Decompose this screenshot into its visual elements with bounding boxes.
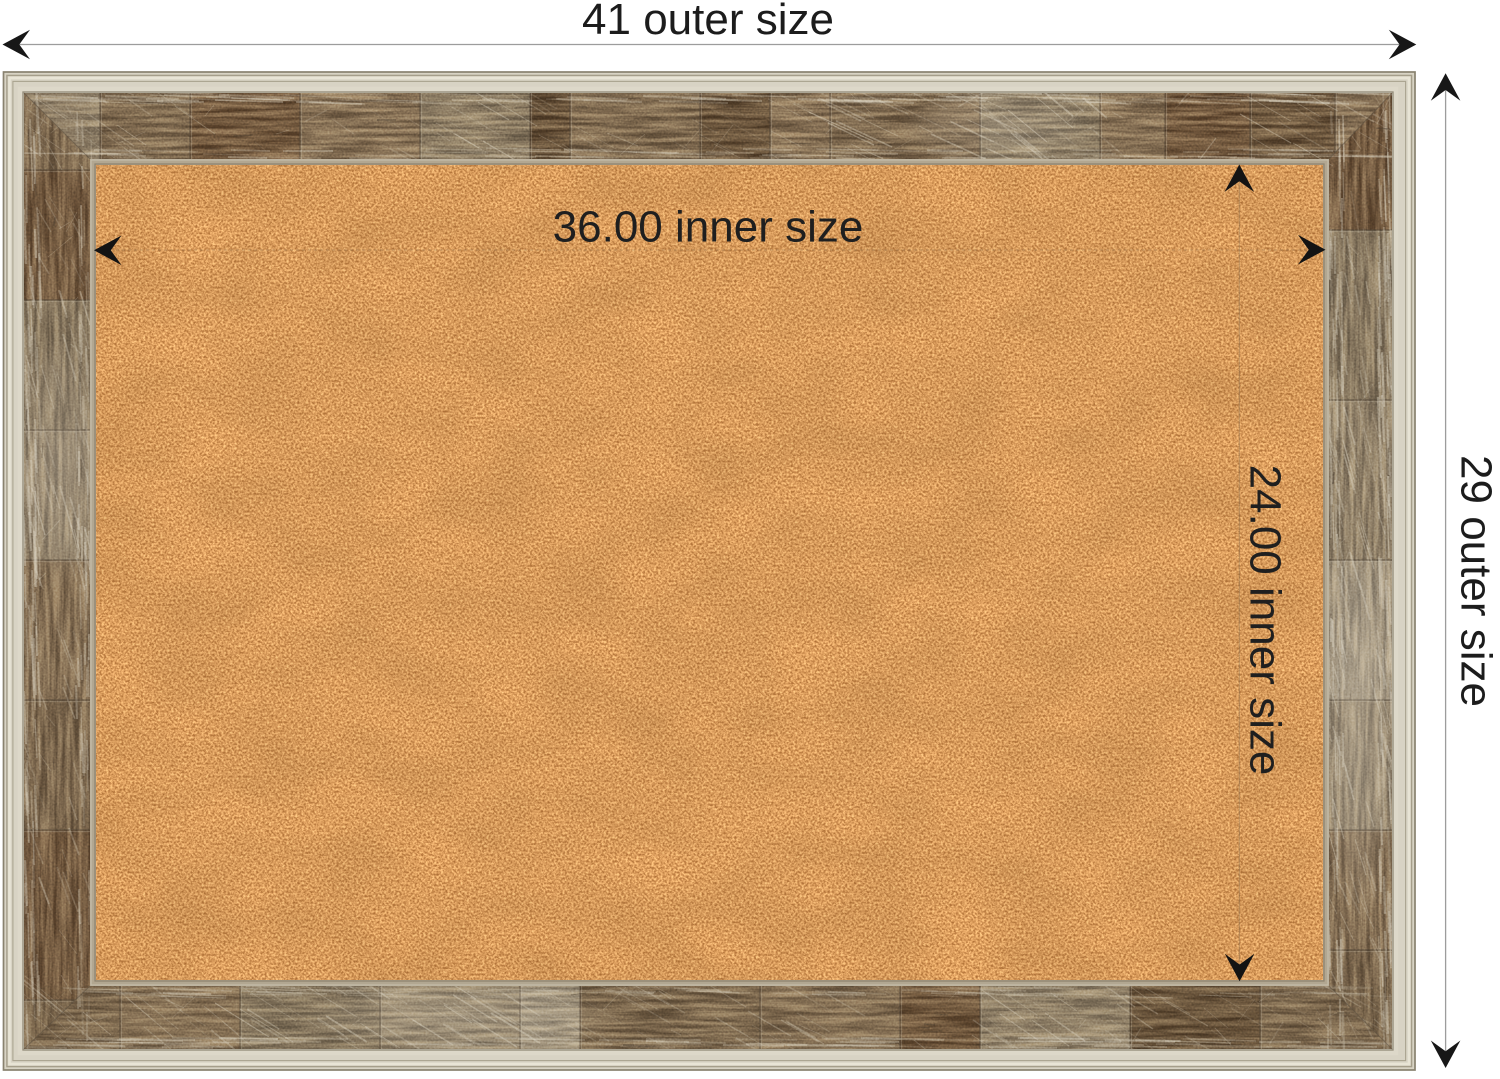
svg-text:29 outer size: 29 outer size [1452,455,1500,707]
svg-text:36.00 inner size: 36.00 inner size [553,203,864,252]
svg-text:41 outer size: 41 outer size [582,0,834,44]
svg-text:24.00 inner size: 24.00 inner size [1241,465,1290,776]
